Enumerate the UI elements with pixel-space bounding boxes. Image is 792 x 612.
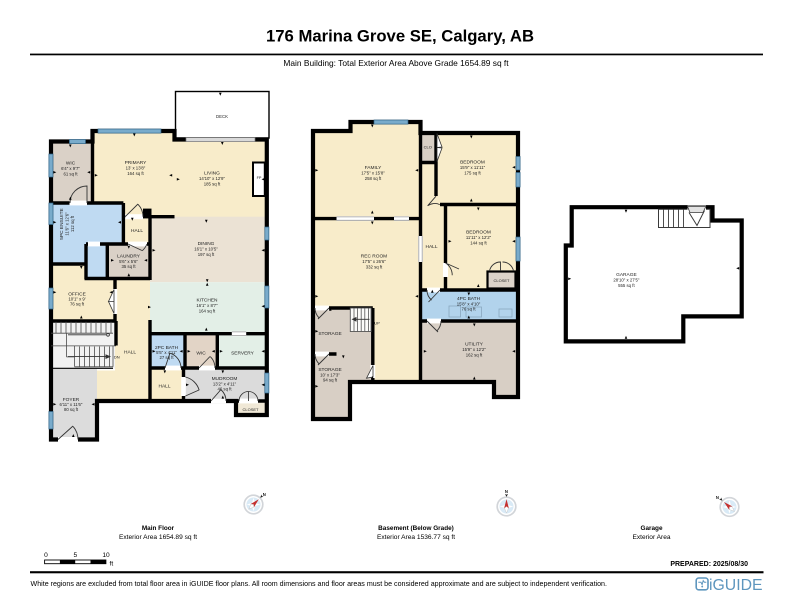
svg-text:555 sq ft: 555 sq ft — [618, 283, 635, 288]
svg-text:HALL: HALL — [159, 384, 171, 390]
svg-text:185 sq ft: 185 sq ft — [204, 182, 221, 187]
svg-text:112 sq ft: 112 sq ft — [70, 215, 75, 232]
svg-text:332 sq ft: 332 sq ft — [366, 265, 383, 270]
svg-text:HALL: HALL — [131, 228, 143, 234]
svg-text:144 sq ft: 144 sq ft — [470, 241, 487, 246]
svg-text:FP: FP — [257, 176, 262, 180]
svg-text:175 sq ft: 175 sq ft — [464, 171, 481, 176]
svg-text:27 sq ft: 27 sq ft — [159, 355, 174, 360]
svg-text:11'11" x 12'2": 11'11" x 12'2" — [466, 235, 492, 240]
svg-text:STORAGE: STORAGE — [318, 331, 341, 337]
svg-text:17'5" x 26'6": 17'5" x 26'6" — [362, 259, 386, 264]
svg-text:17'5" x 15'8": 17'5" x 15'8" — [361, 171, 385, 176]
svg-text:28'10" x 27'5": 28'10" x 27'5" — [613, 278, 639, 283]
svg-text:94 sq ft: 94 sq ft — [323, 378, 338, 383]
svg-text:164 sq ft: 164 sq ft — [199, 309, 216, 314]
svg-text:76 sq ft: 76 sq ft — [461, 307, 476, 312]
svg-text:N: N — [263, 492, 266, 497]
svg-text:ft: ft — [110, 561, 114, 568]
svg-text:CLOSET: CLOSET — [242, 407, 259, 412]
svg-text:N: N — [716, 495, 719, 500]
svg-text:6'4" x 9'7": 6'4" x 9'7" — [61, 166, 80, 171]
svg-text:61 sq ft: 61 sq ft — [63, 172, 78, 177]
svg-text:15'9" x 11'11": 15'9" x 11'11" — [460, 165, 486, 170]
svg-text:258 sq ft: 258 sq ft — [365, 176, 382, 181]
svg-text:197 sq ft: 197 sq ft — [198, 252, 215, 257]
svg-text:0: 0 — [44, 552, 48, 559]
svg-text:10: 10 — [102, 552, 110, 559]
svg-text:N: N — [505, 489, 508, 494]
svg-text:Basement (Below Grade): Basement (Below Grade) — [378, 525, 454, 532]
svg-text:162 sq ft: 162 sq ft — [466, 352, 483, 357]
svg-text:Exterior Area 1654.89 sq ft: Exterior Area 1654.89 sq ft — [119, 534, 197, 541]
svg-text:PREPARED: 2025/08/30: PREPARED: 2025/08/30 — [670, 561, 748, 568]
svg-text:CLO: CLO — [424, 144, 432, 149]
svg-text:164 sq ft: 164 sq ft — [127, 171, 144, 176]
svg-text:15'9" x 12'2": 15'9" x 12'2" — [462, 347, 486, 352]
svg-text:UP: UP — [374, 320, 380, 325]
svg-text:16'1" x 8'7": 16'1" x 8'7" — [196, 303, 218, 308]
svg-text:DN: DN — [114, 354, 120, 359]
svg-text:Exterior Area 1536.77 sq ft: Exterior Area 1536.77 sq ft — [377, 534, 455, 541]
svg-text:76 sq ft: 76 sq ft — [70, 302, 85, 307]
svg-text:SERVERY: SERVERY — [231, 351, 255, 357]
svg-text:iGUIDE: iGUIDE — [709, 577, 763, 594]
svg-text:HALL: HALL — [124, 350, 136, 356]
svg-text:HALL: HALL — [426, 244, 438, 250]
svg-text:DECK: DECK — [216, 114, 228, 119]
svg-text:35 sq ft: 35 sq ft — [121, 264, 136, 269]
svg-text:13' x 13'8": 13' x 13'8" — [126, 166, 146, 171]
svg-text:Main Building: Total Exterior: Main Building: Total Exterior Area Above… — [283, 58, 509, 68]
svg-text:11'6" x 12'6": 11'6" x 12'6" — [65, 212, 70, 236]
svg-text:14'10" x 12'9": 14'10" x 12'9" — [199, 176, 225, 181]
svg-text:5: 5 — [73, 552, 77, 559]
svg-text:WIC: WIC — [196, 351, 206, 357]
svg-text:16'1" x 10'5": 16'1" x 10'5" — [194, 247, 218, 252]
svg-text:176 Marina Grove SE, Calgary,: 176 Marina Grove SE, Calgary, AB — [266, 27, 534, 46]
svg-text:CLOSET: CLOSET — [493, 278, 510, 283]
svg-text:46 sq ft: 46 sq ft — [217, 387, 232, 392]
svg-text:80 sq ft: 80 sq ft — [64, 407, 79, 412]
svg-text:Exterior Area: Exterior Area — [632, 534, 670, 541]
svg-text:Main Floor: Main Floor — [142, 525, 175, 532]
svg-text:Garage: Garage — [640, 525, 662, 532]
svg-text:White regions are excluded fro: White regions are excluded from total fl… — [31, 580, 608, 588]
